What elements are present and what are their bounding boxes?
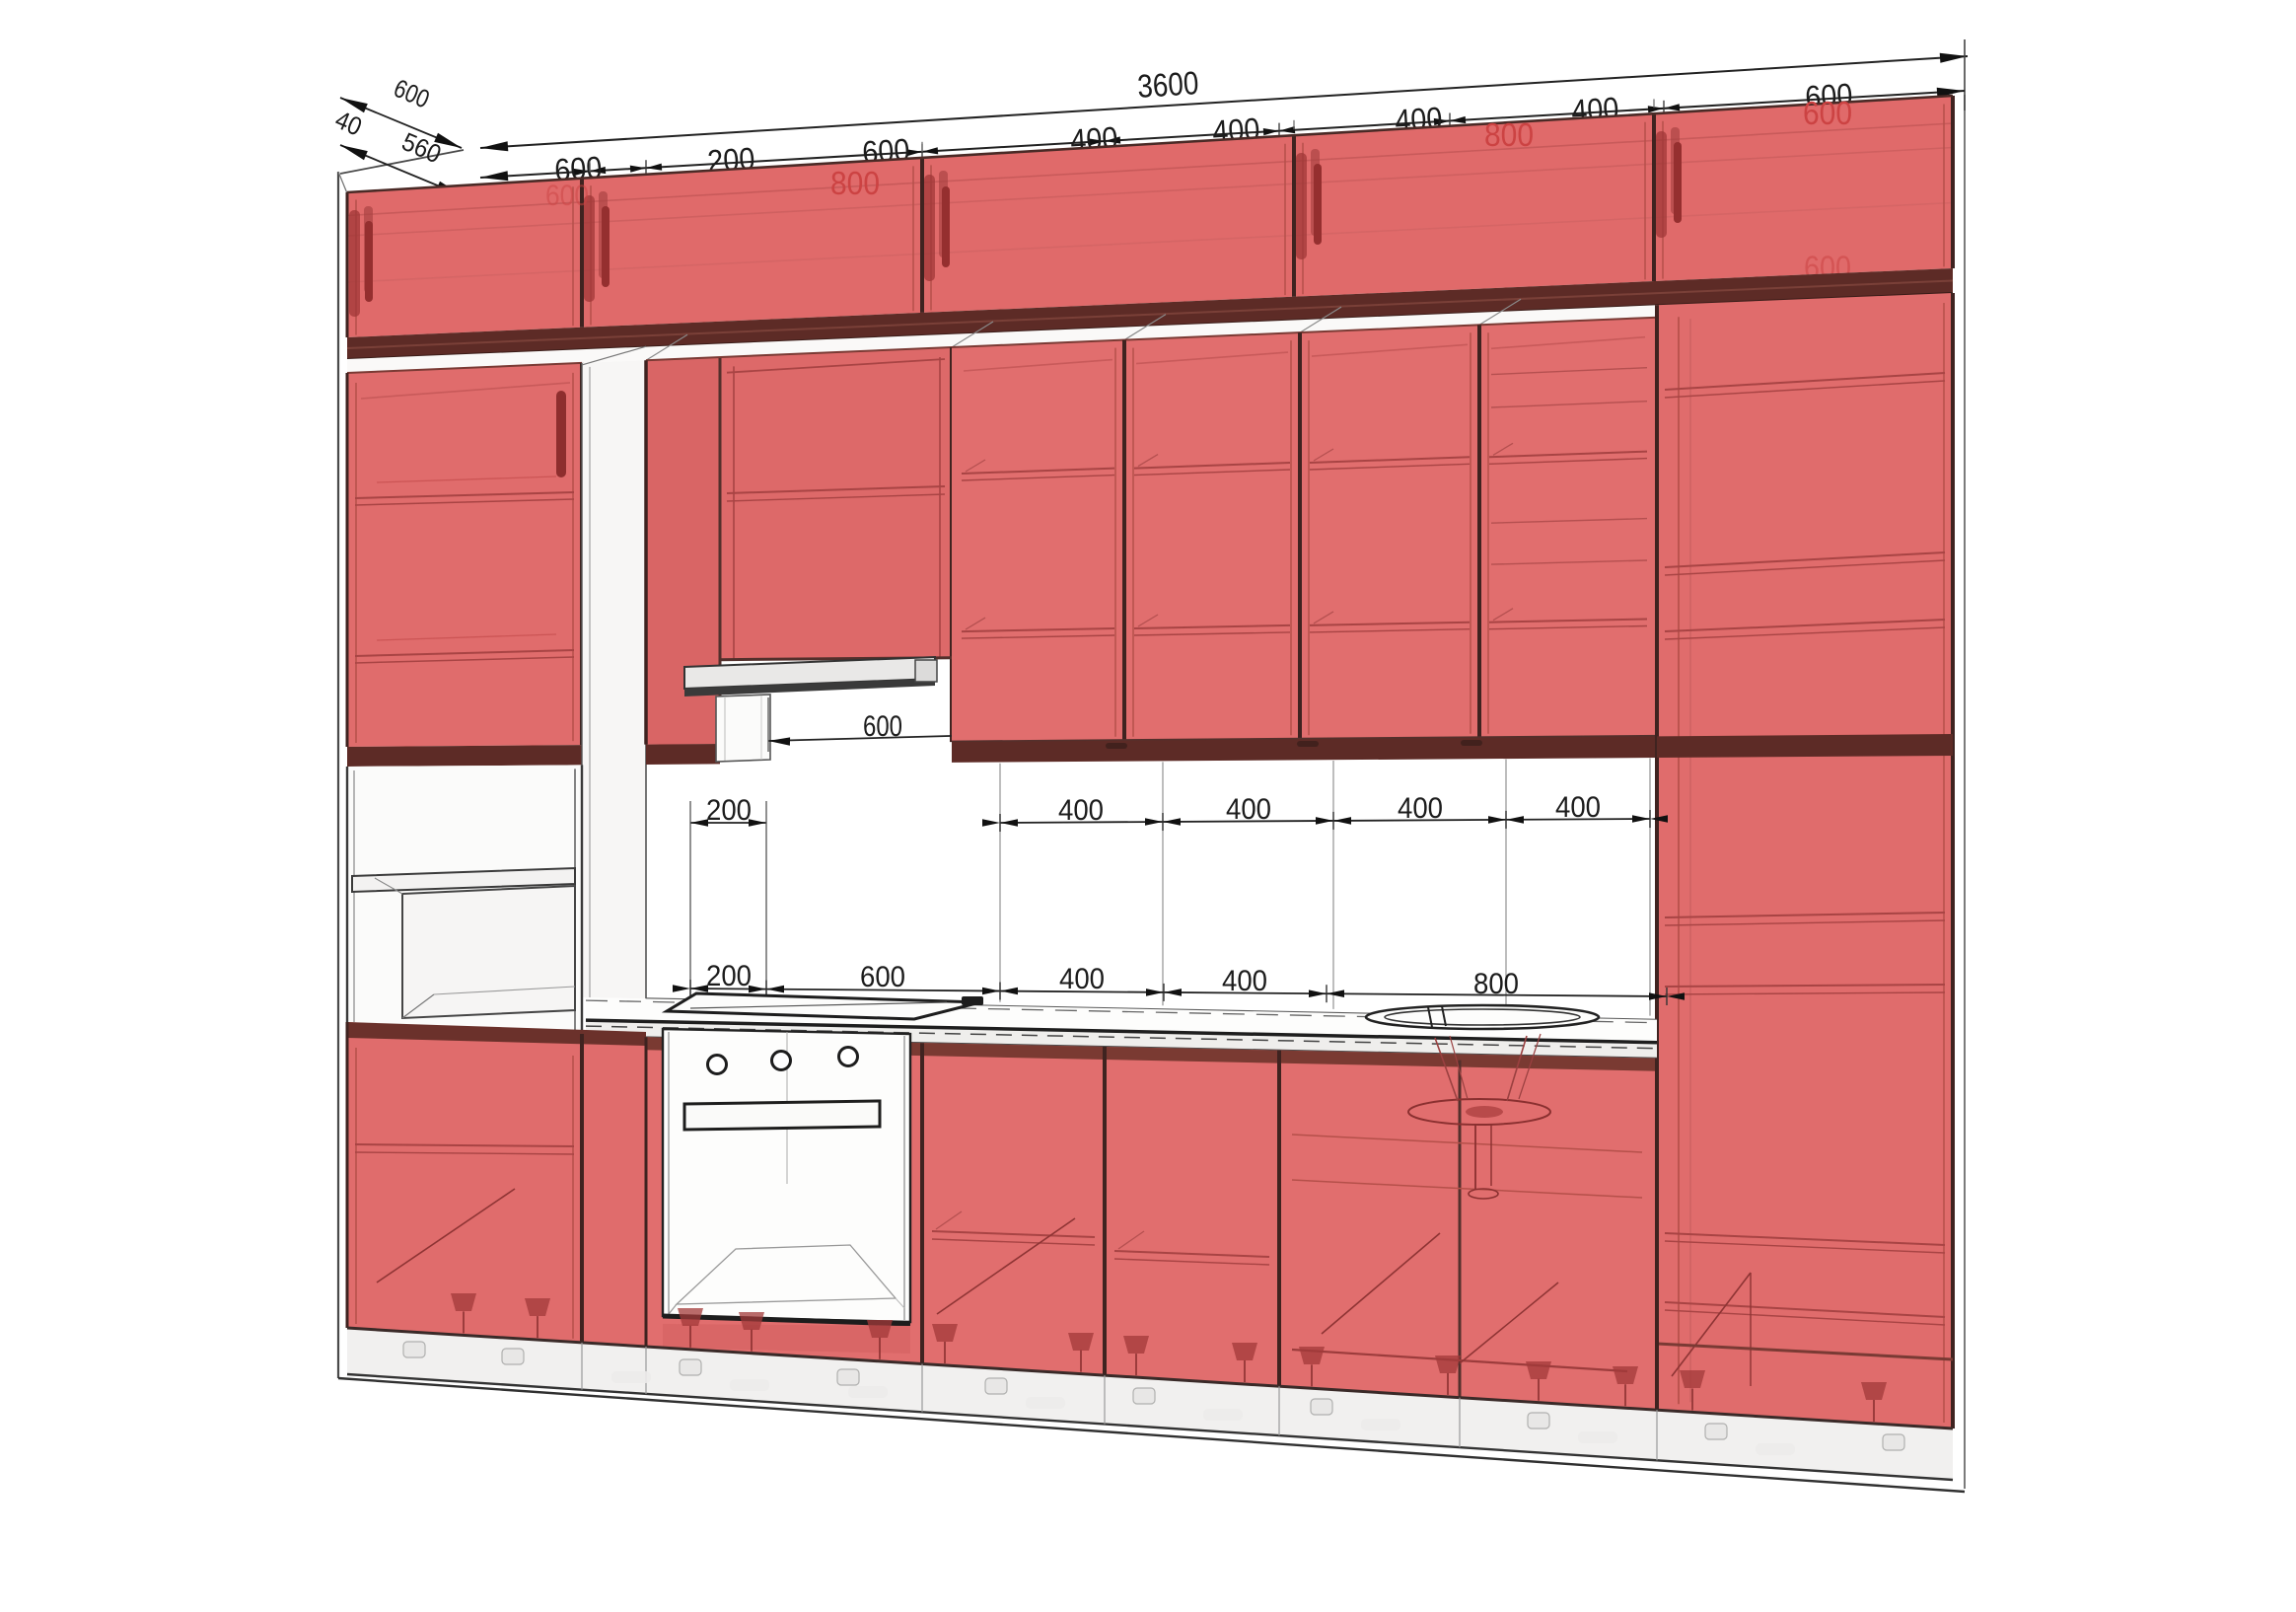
svg-text:800: 800 [1484, 116, 1534, 153]
svg-text:400: 400 [1226, 793, 1271, 826]
svg-text:600: 600 [860, 961, 905, 993]
svg-text:400: 400 [1058, 794, 1104, 827]
svg-text:600: 600 [1803, 95, 1852, 131]
svg-text:400: 400 [1398, 792, 1443, 825]
svg-text:600: 600 [863, 710, 902, 743]
svg-text:200: 200 [706, 960, 752, 992]
svg-text:800: 800 [830, 165, 880, 201]
svg-text:3600: 3600 [1136, 64, 1199, 105]
svg-text:200: 200 [706, 794, 752, 827]
svg-text:600: 600 [545, 180, 589, 212]
svg-text:800: 800 [1473, 968, 1519, 1000]
svg-text:400: 400 [1222, 965, 1267, 997]
svg-text:400: 400 [1555, 791, 1601, 824]
svg-text:400: 400 [1059, 963, 1105, 995]
